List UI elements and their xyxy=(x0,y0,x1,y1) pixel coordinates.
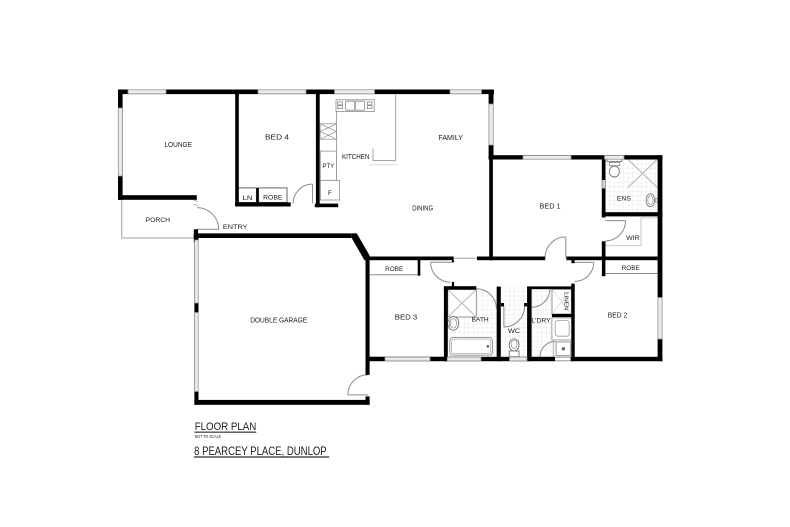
svg-text:LINEN: LINEN xyxy=(562,292,568,310)
svg-text:BED 2: BED 2 xyxy=(608,312,628,319)
svg-text:8 PEARCEY PLACE, DUNLOP: 8 PEARCEY PLACE, DUNLOP xyxy=(194,444,327,458)
svg-text:NOT TO SCALE: NOT TO SCALE xyxy=(195,434,222,440)
svg-text:WC: WC xyxy=(508,328,520,335)
svg-text:BED 3: BED 3 xyxy=(395,315,418,322)
svg-text:WIR: WIR xyxy=(626,235,640,242)
svg-text:ENS: ENS xyxy=(617,196,632,203)
svg-text:LOUNGE: LOUNGE xyxy=(164,142,192,149)
svg-text:BATH: BATH xyxy=(472,317,489,324)
svg-text:FAMILY: FAMILY xyxy=(438,135,463,142)
svg-text:DOUBLE GARAGE: DOUBLE GARAGE xyxy=(250,318,307,325)
svg-text:ROBE: ROBE xyxy=(622,265,640,272)
svg-text:LN: LN xyxy=(243,195,253,202)
svg-text:ROBE: ROBE xyxy=(385,266,403,273)
svg-text:BED 1: BED 1 xyxy=(540,204,561,211)
svg-text:BED 4: BED 4 xyxy=(265,135,289,142)
svg-text:PORCH: PORCH xyxy=(146,217,171,224)
svg-text:FLOOR PLAN: FLOOR PLAN xyxy=(195,421,257,433)
svg-text:F: F xyxy=(328,190,332,197)
svg-text:ENTRY: ENTRY xyxy=(223,224,248,231)
svg-text:KITCHEN: KITCHEN xyxy=(342,154,370,161)
svg-text:ROBE: ROBE xyxy=(263,195,282,202)
svg-text:L'DRY: L'DRY xyxy=(531,317,551,324)
svg-text:DINING: DINING xyxy=(412,205,433,212)
svg-text:PTY: PTY xyxy=(323,163,335,170)
